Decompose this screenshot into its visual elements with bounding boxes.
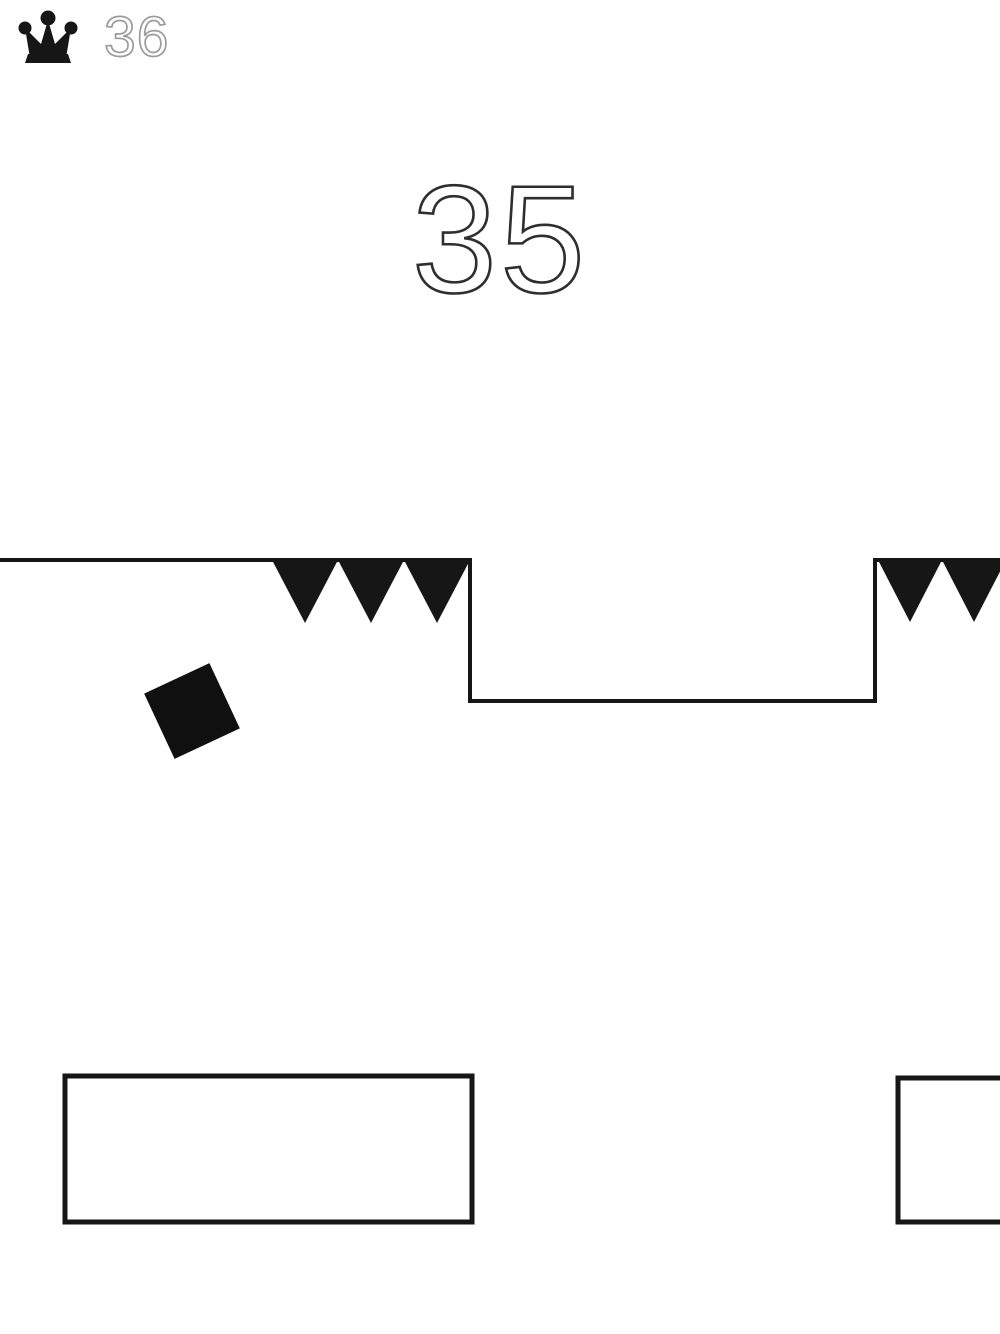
- spike-group: [878, 560, 1000, 622]
- obstacle-rectangle: [65, 1076, 472, 1222]
- crown-icon: [18, 8, 78, 66]
- best-score-value: 36: [104, 9, 169, 66]
- spike-group: [272, 560, 470, 623]
- game-stage[interactable]: 36 35: [0, 0, 1000, 1334]
- ground-line: [0, 560, 1000, 701]
- obstacle-rectangle: [898, 1078, 1000, 1222]
- player-square: [144, 663, 240, 759]
- hud-best-score: 36: [18, 8, 169, 66]
- current-score: 35: [0, 163, 1000, 316]
